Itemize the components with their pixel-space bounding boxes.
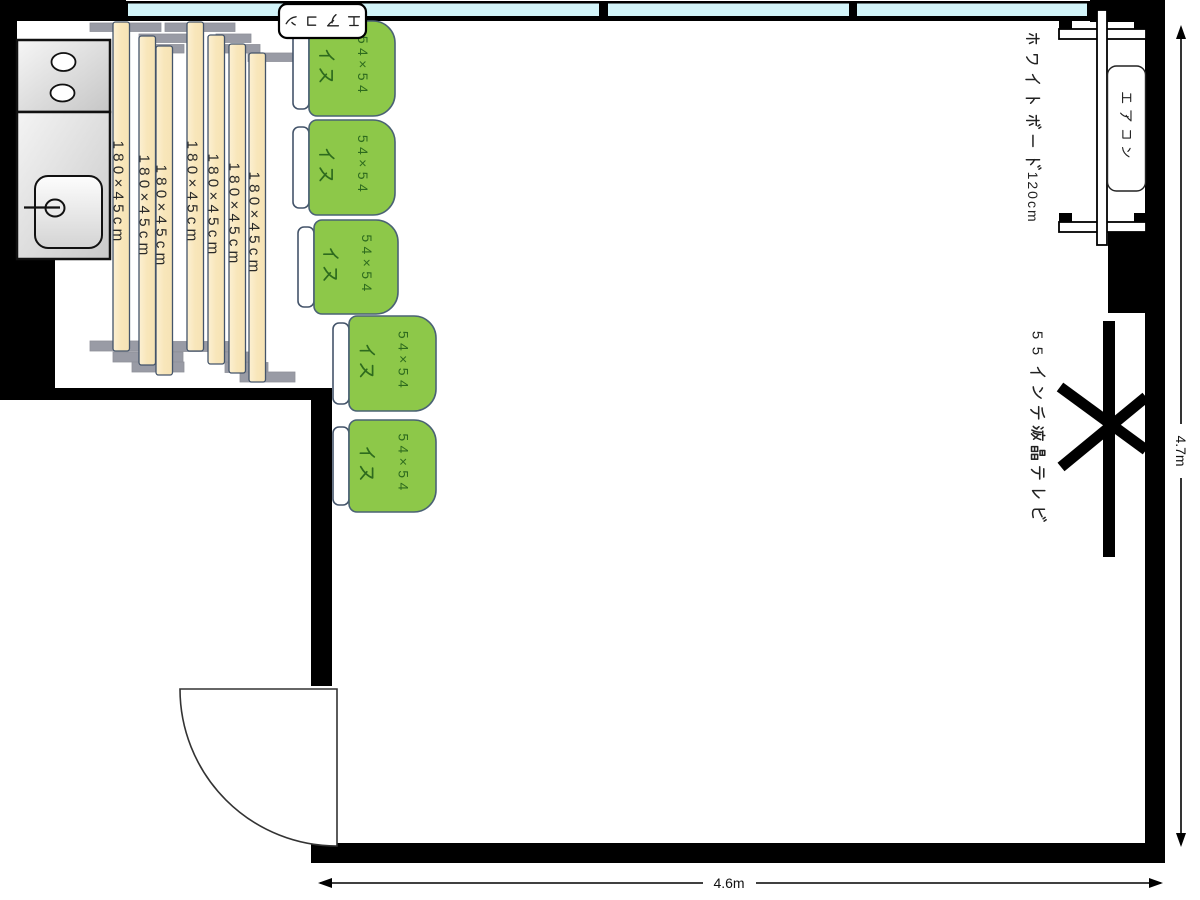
svg-text:54×54: 54×54 — [355, 135, 371, 196]
svg-text:4.6m: 4.6m — [713, 875, 744, 891]
svg-text:180×45cm: 180×45cm — [183, 141, 200, 246]
svg-text:120cm: 120cm — [1025, 172, 1041, 224]
svg-text:180×45cm: 180×45cm — [225, 163, 242, 268]
svg-text:4.7m: 4.7m — [1173, 435, 1189, 466]
svg-text:54×54: 54×54 — [359, 234, 375, 295]
svg-text:180×45cm: 180×45cm — [152, 165, 169, 270]
svg-text:180×45cm: 180×45cm — [135, 155, 152, 260]
svg-text:180×45cm: 180×45cm — [204, 154, 221, 259]
svg-text:54×54: 54×54 — [396, 433, 412, 494]
svg-text:54×54: 54×54 — [355, 36, 371, 97]
svg-text:180×45cm: 180×45cm — [109, 141, 126, 246]
svg-text:55: 55 — [1029, 331, 1046, 363]
svg-text:180×45cm: 180×45cm — [245, 172, 262, 277]
svg-text:54×54: 54×54 — [396, 331, 412, 392]
